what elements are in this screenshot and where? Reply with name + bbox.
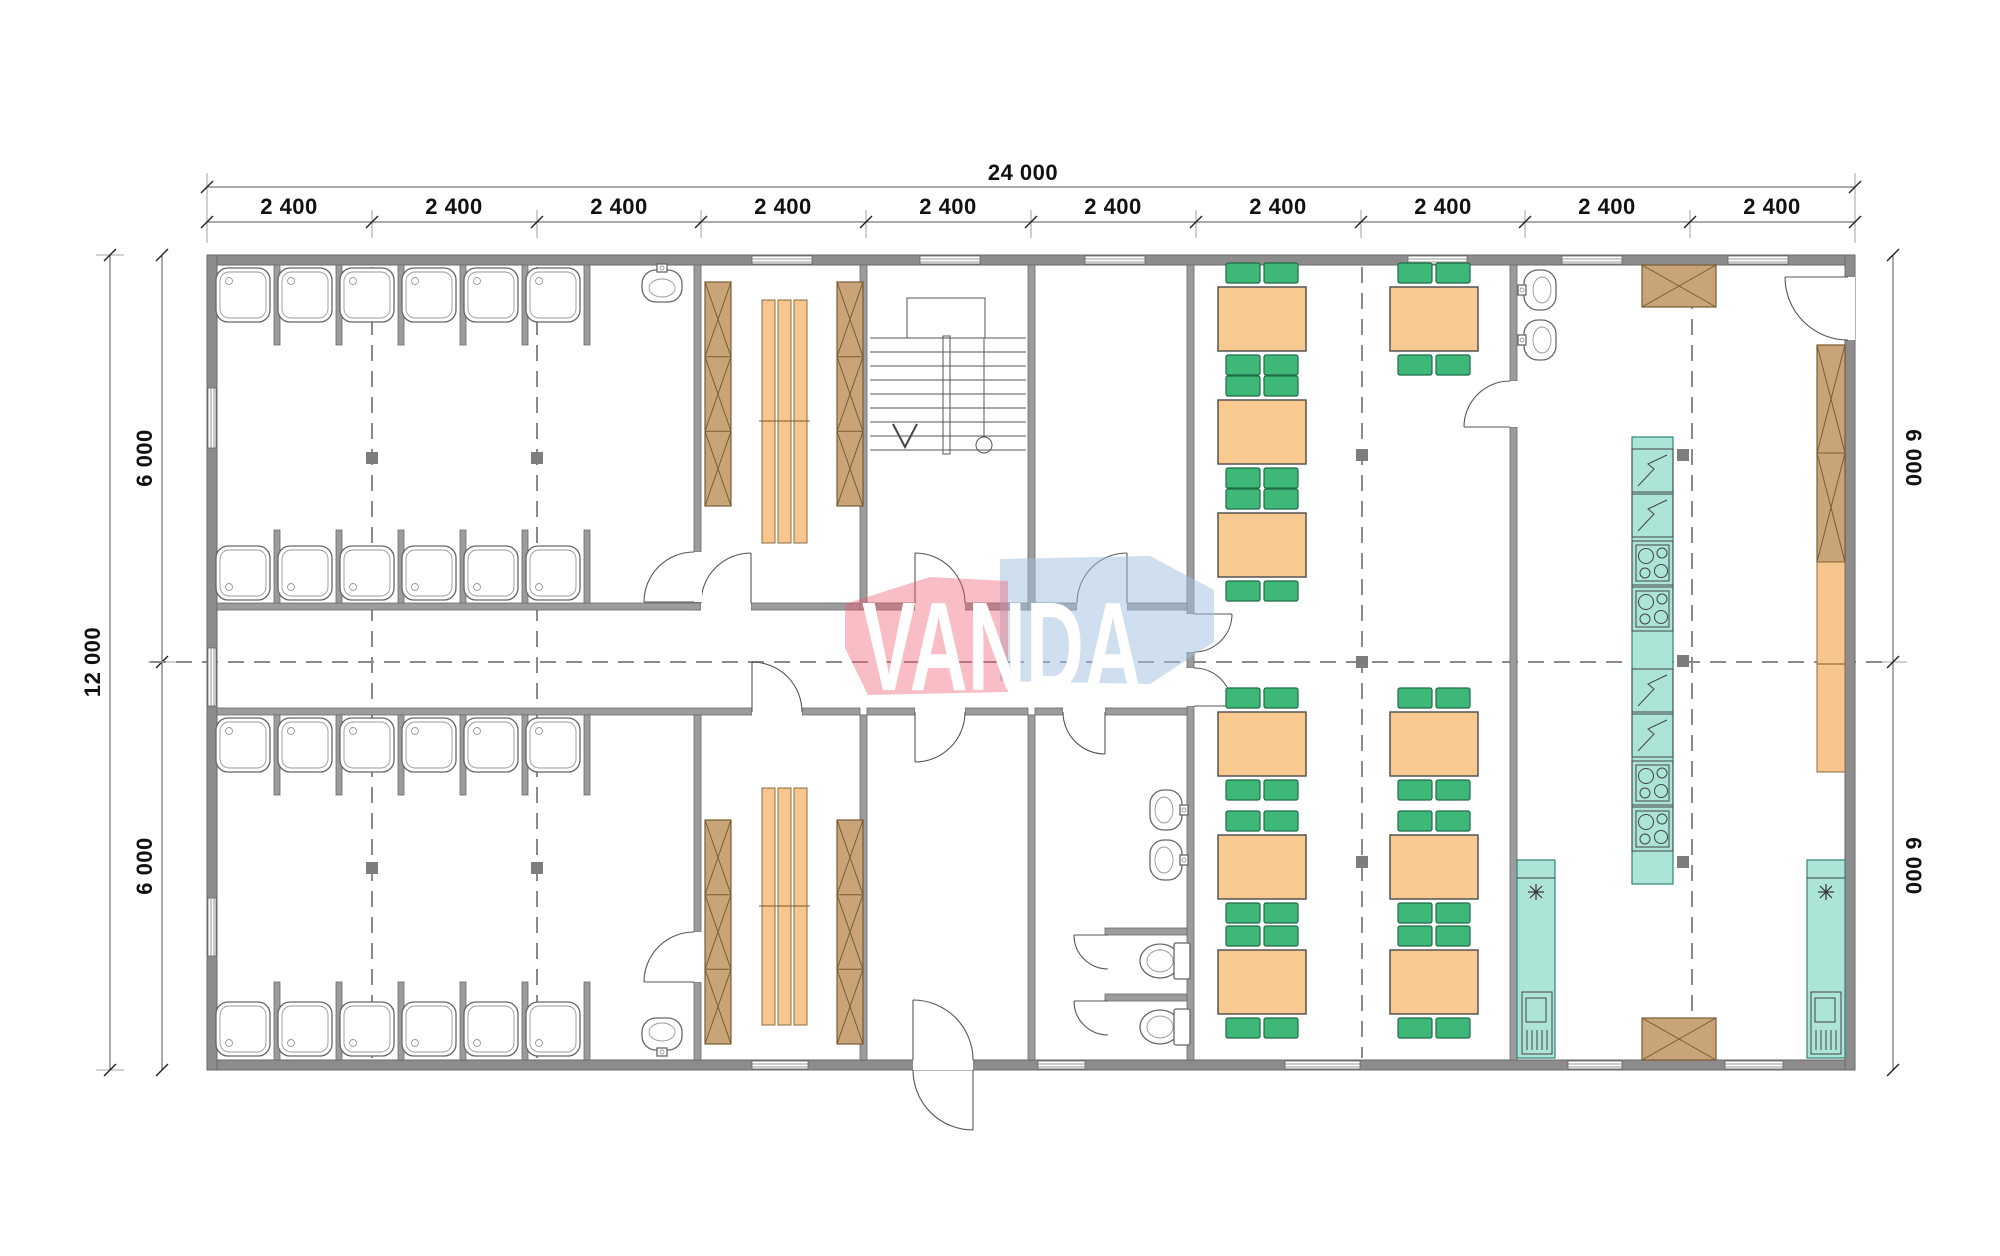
dishwasher-station: [1517, 860, 1555, 1058]
dining-table-group: [1390, 926, 1478, 1038]
dining-table-group: [1390, 688, 1478, 800]
dim-half-height-label: 6 000: [132, 429, 157, 487]
shower-tray: [278, 718, 332, 772]
dining-table-group: [1218, 811, 1306, 923]
door: [644, 552, 702, 602]
dimension-right: 6 000 6 000: [1879, 249, 1926, 1076]
bench: [759, 300, 810, 543]
locker-cabinet: [705, 820, 731, 1044]
locker-cabinet: [837, 282, 863, 506]
watermark-text: VANDA: [862, 576, 1142, 717]
dining-table-group: [1218, 489, 1306, 601]
dim-segment-label: 2 400: [1084, 194, 1142, 219]
locker-cabinet: [837, 820, 863, 1044]
vent-shaft: [1642, 265, 1716, 307]
door: [1464, 381, 1518, 427]
locker-cabinet: [705, 282, 731, 506]
shower-room-top: [216, 264, 682, 600]
dim-segment-label: 2 400: [425, 194, 483, 219]
shower-tray: [278, 268, 332, 322]
dimension-top-segments: 2 400 2 400 2 400 2 400 2 400 2 400 2 40…: [201, 194, 1861, 238]
column-marker: [1677, 449, 1689, 461]
wc-room: [1140, 790, 1190, 1045]
floor-plan: 24 000 2 400 2 400 2 400 2 400 2 400 2 4…: [0, 0, 2000, 1256]
toilet: [1140, 1009, 1190, 1045]
dim-segment-label: 2 400: [1249, 194, 1307, 219]
locker-room-bottom: [705, 788, 863, 1044]
locker-room-top: [705, 282, 863, 543]
toilet: [1140, 943, 1190, 979]
shower-tray: [464, 546, 518, 600]
wash-basin: [1518, 320, 1556, 360]
dim-segment-label: 2 400: [919, 194, 977, 219]
shower-tray: [402, 718, 456, 772]
dim-half-height-label: 6 000: [1901, 837, 1926, 895]
door: [1785, 277, 1855, 340]
column-marker: [1356, 449, 1368, 461]
door: [644, 932, 702, 982]
dim-total-height-label: 12 000: [80, 627, 105, 697]
dim-segment-label: 2 400: [754, 194, 812, 219]
column-marker: [1677, 655, 1689, 667]
dishwasher-station: [1807, 860, 1845, 1058]
shower-tray: [278, 1002, 332, 1056]
shower-tray: [340, 718, 394, 772]
dim-half-height-label: 6 000: [1901, 429, 1926, 487]
dining-table-group: [1390, 811, 1478, 923]
shower-tray: [340, 268, 394, 322]
wash-basin: [1518, 270, 1556, 310]
column-marker: [531, 862, 543, 874]
wall-cabinet: [1817, 345, 1845, 562]
shower-tray: [340, 1002, 394, 1056]
shower-tray: [526, 546, 580, 600]
dining-area: [1218, 263, 1478, 1038]
shower-room-bottom: [216, 718, 682, 1056]
column-marker: [1677, 856, 1689, 868]
stall-door: [1074, 935, 1108, 969]
shower-tray: [526, 718, 580, 772]
column-marker: [366, 862, 378, 874]
wall-right: [1845, 255, 1855, 1070]
wash-basin: [1150, 840, 1188, 880]
shower-tray: [464, 1002, 518, 1056]
dining-table-group: [1218, 376, 1306, 488]
dim-segment-label: 2 400: [260, 194, 318, 219]
floor-plan-canvas: 24 000 2 400 2 400 2 400 2 400 2 400 2 4…: [0, 0, 2000, 1256]
watermark: VANDA: [845, 556, 1214, 717]
shower-tray: [216, 546, 270, 600]
stall-door: [1074, 1001, 1108, 1035]
dining-table-group: [1390, 263, 1478, 375]
shower-tray: [402, 1002, 456, 1056]
dim-segment-label: 2 400: [1743, 194, 1801, 219]
shower-tray: [216, 268, 270, 322]
shower-tray: [402, 268, 456, 322]
door: [752, 662, 802, 716]
shower-tray: [464, 718, 518, 772]
shower-tray: [340, 546, 394, 600]
dim-total-width-label: 24 000: [988, 160, 1058, 185]
dim-half-height-label: 6 000: [132, 837, 157, 895]
wash-basin: [1150, 790, 1188, 830]
dining-table-group: [1218, 263, 1306, 375]
kitchen-island: [1632, 437, 1673, 884]
column-marker: [1356, 656, 1368, 668]
wash-basin: [642, 264, 682, 302]
door: [1186, 668, 1232, 706]
column-marker: [1356, 856, 1368, 868]
shower-tray: [526, 268, 580, 322]
dim-segment-label: 2 400: [590, 194, 648, 219]
staircase: [870, 298, 1026, 454]
vent-shaft: [1642, 1018, 1716, 1060]
column-marker: [531, 452, 543, 464]
shower-tray: [526, 1002, 580, 1056]
dim-segment-label: 2 400: [1414, 194, 1472, 219]
dining-table-group: [1218, 926, 1306, 1038]
shower-tray: [464, 268, 518, 322]
shower-tray: [402, 546, 456, 600]
dining-table-group: [1218, 688, 1306, 800]
shower-tray: [216, 1002, 270, 1056]
bench: [759, 788, 810, 1025]
counter: [1817, 562, 1845, 772]
wash-basin: [642, 1018, 682, 1056]
entrance-door: [913, 1000, 973, 1130]
door: [701, 553, 751, 611]
shower-tray: [278, 546, 332, 600]
dim-segment-label: 2 400: [1578, 194, 1636, 219]
shower-tray: [216, 718, 270, 772]
column-marker: [366, 452, 378, 464]
